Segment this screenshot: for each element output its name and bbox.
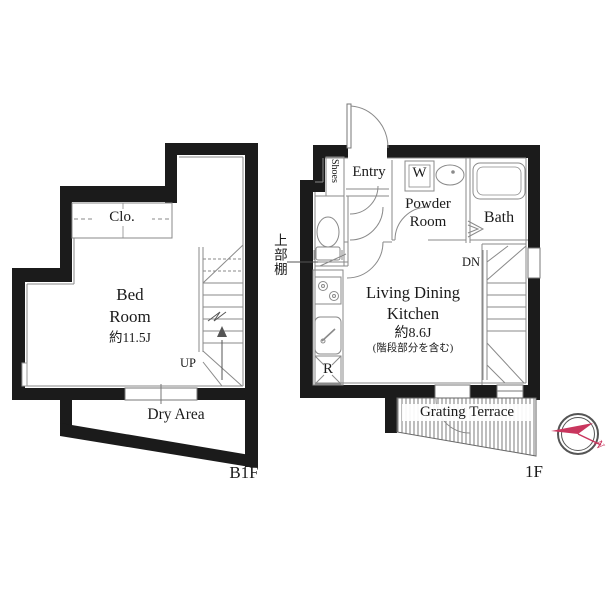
ldk-area-note: (階段部分を含む) [348, 343, 478, 355]
powder-room-label-line1: Powder [392, 196, 464, 213]
stair-window [528, 248, 540, 278]
stairs-down-label: DN [458, 256, 484, 270]
shoe-cabinet-label: Shoes [329, 159, 340, 196]
dry-area-label: Dry Area [126, 406, 226, 423]
entry-door-leaf [347, 104, 351, 148]
stairs-up-label: UP [175, 357, 201, 371]
washer-label: W [405, 165, 434, 182]
terrace-door-opening [435, 385, 470, 398]
f1-floor-label: 1F [514, 463, 554, 482]
entry-step [346, 189, 389, 196]
ldk-label-line2: Kitchen [348, 305, 478, 323]
bedroom-label-line2: Room [90, 308, 170, 327]
powder-room-label-line2: Room [392, 214, 464, 231]
stove [315, 277, 341, 304]
bedroom-label-line1: Bed [90, 286, 170, 305]
ldk-door-swing [347, 242, 383, 278]
ldk-label-line1: Living Dining [348, 284, 478, 302]
bath-label: Bath [472, 209, 526, 227]
closet-label: Clo. [92, 209, 152, 226]
ldk-area-label: 約8.6J [348, 326, 478, 341]
grating-terrace-label: Grating Terrace [402, 404, 532, 421]
wall-slit [22, 363, 27, 386]
entry-door-swing [351, 106, 388, 148]
toilet-bowl [317, 217, 339, 247]
b1f-floor-label: B1F [214, 464, 274, 483]
bathtub [473, 163, 525, 199]
floor-plan-page: Clo. Bed Room 約11.5J UP Dry Area B1F Sho… [0, 0, 610, 600]
f1-stairs [482, 244, 526, 385]
upper-shelf-label: 上部棚 [271, 233, 286, 295]
bedroom-area-label: 約11.5J [88, 331, 172, 346]
powder-sink [436, 165, 464, 185]
entry-label: Entry [346, 164, 392, 181]
b1f-stairs [199, 245, 243, 386]
hall-door-swing [350, 207, 383, 240]
refrigerator-label: R [316, 361, 340, 378]
toilet-door-swing [350, 186, 378, 214]
